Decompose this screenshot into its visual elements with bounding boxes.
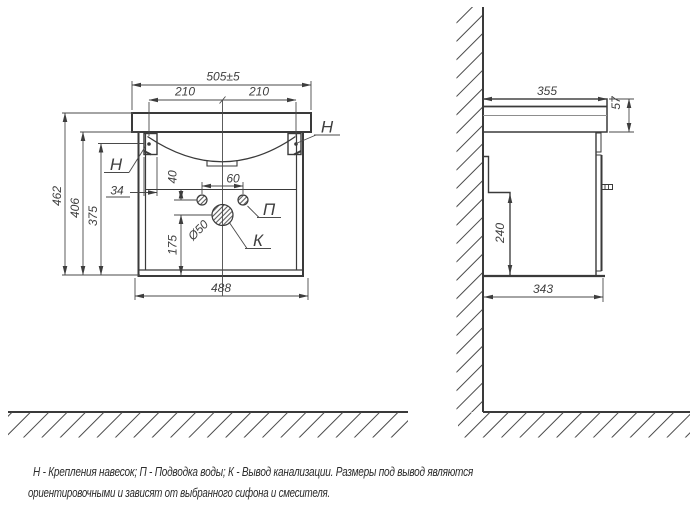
basin-lip-side bbox=[596, 133, 601, 152]
dim-heights-left: 462 406 375 bbox=[50, 113, 144, 275]
caption-line-2: ориентировочными и зависят от выбранного… bbox=[28, 485, 330, 500]
dim-57-label: 57 bbox=[609, 95, 623, 110]
water-leader bbox=[248, 206, 260, 218]
dim-343-label: 343 bbox=[533, 282, 553, 296]
dim-top-width: 505±5 bbox=[132, 70, 311, 111]
dim-drain-diameter-label: Ø50 bbox=[184, 217, 211, 244]
dim-210-left-label: 210 bbox=[174, 85, 195, 99]
side-cabinet bbox=[483, 132, 613, 276]
dim-34-label: 34 bbox=[110, 184, 124, 198]
caption: Н - Крепления навесок; П - Подводка воды… bbox=[28, 464, 473, 500]
label-water-supply: П bbox=[263, 200, 276, 219]
dim-top-depth: 355 bbox=[483, 84, 607, 99]
floor-hatch-front bbox=[8, 413, 408, 438]
hanger-dot-left bbox=[147, 142, 151, 146]
hanger-leader-right bbox=[296, 135, 316, 144]
drain-leader bbox=[229, 222, 247, 249]
label-drain: К bbox=[253, 231, 264, 250]
label-hanger-left: Н bbox=[110, 155, 123, 174]
dim-355-label: 355 bbox=[537, 84, 557, 98]
vanity-installation-drawing: 505±5 210 210 462 406 375 bbox=[0, 0, 700, 511]
basin-curve bbox=[148, 137, 296, 162]
drain-hole bbox=[212, 205, 233, 226]
back-step bbox=[483, 157, 510, 277]
side-countertop bbox=[483, 99, 607, 132]
dim-175-label: 175 bbox=[166, 235, 180, 255]
dim-40-label: 40 bbox=[166, 170, 180, 184]
dim-60-label: 60 bbox=[226, 172, 240, 186]
dim-hole-drop: 40 bbox=[166, 170, 198, 200]
drawing-canvas: 505±5 210 210 462 406 375 bbox=[0, 0, 700, 511]
door-handle bbox=[602, 185, 613, 190]
dim-top-height: 57 bbox=[609, 95, 634, 132]
dim-bottom-depth: 343 bbox=[484, 278, 603, 302]
cabinet-body-front bbox=[139, 132, 304, 276]
countertop-front bbox=[132, 113, 311, 132]
dim-240-label: 240 bbox=[493, 223, 507, 244]
dim-462-label: 462 bbox=[50, 186, 64, 206]
side-view: 355 57 240 343 bbox=[457, 7, 635, 412]
dim-back-panel: 240 bbox=[493, 194, 510, 274]
front-view: 505±5 210 210 462 406 375 bbox=[50, 70, 340, 301]
dim-210-right-label: 210 bbox=[248, 85, 269, 99]
dim-488-label: 488 bbox=[211, 281, 231, 295]
dim-375-label: 375 bbox=[86, 206, 100, 226]
wall-hatch bbox=[457, 7, 484, 412]
front-carcass bbox=[132, 100, 311, 296]
floor bbox=[8, 412, 690, 438]
dim-bottom-width: 488 bbox=[135, 278, 308, 300]
water-hole-right bbox=[238, 195, 248, 205]
caption-line-1: Н - Крепления навесок; П - Подводка воды… bbox=[33, 464, 473, 479]
floor-hatch-side bbox=[458, 413, 690, 438]
label-hanger-right: Н bbox=[321, 118, 334, 137]
dim-505-label: 505±5 bbox=[206, 70, 240, 84]
water-hole-left bbox=[197, 195, 207, 205]
dim-406-label: 406 bbox=[68, 198, 82, 218]
